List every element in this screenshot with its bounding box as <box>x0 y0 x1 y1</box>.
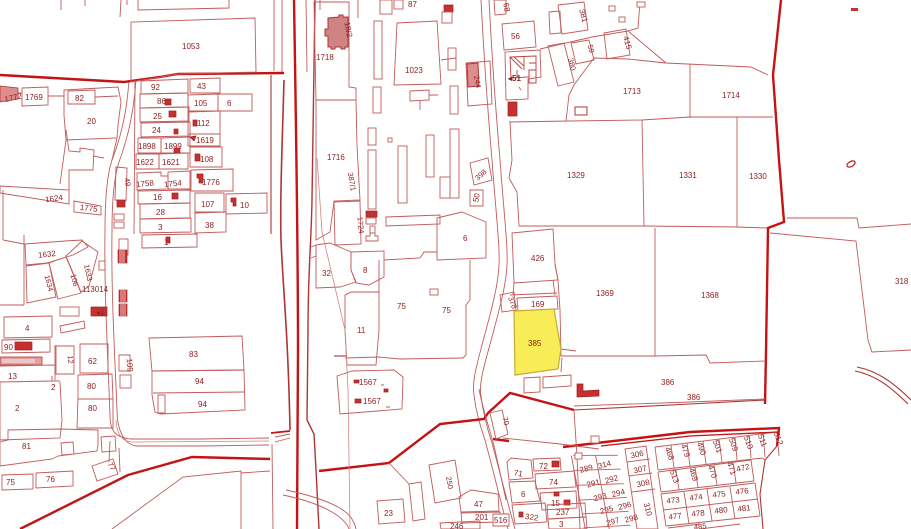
svg-text:1898: 1898 <box>138 142 156 151</box>
svg-text:474: 474 <box>689 492 704 503</box>
svg-text:1775: 1775 <box>79 203 98 214</box>
svg-text:2: 2 <box>15 404 20 413</box>
svg-text:1714: 1714 <box>722 91 740 100</box>
svg-text:12: 12 <box>66 355 76 364</box>
svg-text:475: 475 <box>712 489 727 500</box>
svg-text:1330: 1330 <box>749 172 767 181</box>
svg-text:15: 15 <box>551 499 560 508</box>
svg-text:1567: 1567 <box>359 378 377 387</box>
svg-text:83: 83 <box>189 350 198 359</box>
svg-text:1754: 1754 <box>164 178 183 189</box>
svg-text:3: 3 <box>559 520 564 529</box>
svg-text:28: 28 <box>156 208 165 217</box>
svg-text:1331: 1331 <box>679 171 697 180</box>
svg-text:6: 6 <box>227 99 232 108</box>
svg-text:105: 105 <box>194 99 208 108</box>
svg-text:81: 81 <box>22 442 31 451</box>
svg-text:16: 16 <box>153 193 162 202</box>
svg-text:516: 516 <box>494 516 508 525</box>
svg-text:113014: 113014 <box>82 285 109 294</box>
svg-text:386: 386 <box>687 393 701 402</box>
svg-text:485: 485 <box>693 521 707 529</box>
svg-text:49: 49 <box>122 177 132 187</box>
svg-text:82: 82 <box>75 94 84 103</box>
svg-text:87: 87 <box>408 0 417 9</box>
svg-text:1769: 1769 <box>25 93 43 102</box>
svg-text:1368: 1368 <box>701 291 719 300</box>
svg-text:1023: 1023 <box>405 66 423 75</box>
svg-text:74: 74 <box>549 478 558 487</box>
svg-text:480: 480 <box>714 505 729 516</box>
svg-text:94: 94 <box>198 400 207 409</box>
svg-text:1724: 1724 <box>356 216 366 233</box>
svg-text:477: 477 <box>668 511 683 522</box>
svg-text:13: 13 <box>8 372 17 381</box>
svg-text:385: 385 <box>528 339 542 348</box>
svg-text:1758: 1758 <box>136 178 155 189</box>
svg-text:426: 426 <box>531 254 545 263</box>
svg-text:1329: 1329 <box>567 171 585 180</box>
svg-text:1567: 1567 <box>363 397 381 406</box>
svg-text:92: 92 <box>151 83 160 92</box>
svg-text:24: 24 <box>152 126 161 135</box>
svg-text:◂1: ◂1 <box>96 308 105 317</box>
svg-text:6: 6 <box>521 490 526 499</box>
svg-text:3: 3 <box>158 223 163 232</box>
svg-text:6: 6 <box>463 234 468 243</box>
svg-text:75: 75 <box>397 302 406 311</box>
svg-text:75: 75 <box>442 306 451 315</box>
svg-text:1632: 1632 <box>38 249 57 260</box>
svg-text:1369: 1369 <box>596 289 614 298</box>
svg-text:108: 108 <box>200 155 214 164</box>
svg-text:1716: 1716 <box>327 153 345 162</box>
svg-text:1622: 1622 <box>136 158 154 167</box>
svg-text:10: 10 <box>240 201 249 210</box>
svg-text:2: 2 <box>51 383 56 392</box>
svg-text:107: 107 <box>201 200 215 209</box>
svg-text:72: 72 <box>539 462 548 471</box>
svg-text:25: 25 <box>153 112 162 121</box>
svg-text:169: 169 <box>531 300 545 309</box>
svg-text:94: 94 <box>195 377 204 386</box>
svg-text:56: 56 <box>511 32 520 41</box>
svg-text:32: 32 <box>322 269 331 278</box>
svg-text:◂51: ◂51 <box>507 74 521 83</box>
svg-text:246: 246 <box>450 522 464 529</box>
svg-text:90: 90 <box>4 343 13 352</box>
svg-text:38: 38 <box>205 221 214 230</box>
svg-text:80: 80 <box>87 382 96 391</box>
svg-text:1713: 1713 <box>623 87 641 96</box>
svg-text:47: 47 <box>474 500 483 509</box>
svg-text:201: 201 <box>475 513 489 522</box>
svg-text:473: 473 <box>666 495 681 506</box>
svg-text:322: 322 <box>524 512 539 523</box>
svg-text:386: 386 <box>661 378 675 387</box>
svg-text:109: 109 <box>125 358 135 373</box>
svg-text:1621: 1621 <box>162 158 180 167</box>
svg-text:476: 476 <box>735 486 750 497</box>
svg-text:478: 478 <box>691 508 706 519</box>
svg-text:112: 112 <box>197 119 210 128</box>
svg-text:1619: 1619 <box>196 136 214 145</box>
svg-text:4: 4 <box>25 324 30 333</box>
svg-text:20: 20 <box>87 117 96 126</box>
svg-text:11: 11 <box>357 326 366 335</box>
svg-text:481: 481 <box>737 503 752 514</box>
svg-text:1776: 1776 <box>202 178 220 187</box>
svg-text:8: 8 <box>363 266 368 275</box>
svg-text:75: 75 <box>6 478 15 487</box>
svg-text:318: 318 <box>895 277 909 286</box>
svg-text:237: 237 <box>556 508 570 517</box>
svg-text:80: 80 <box>88 404 97 413</box>
svg-text:23: 23 <box>384 509 393 518</box>
svg-text:1718: 1718 <box>316 53 334 62</box>
svg-text:43: 43 <box>197 82 206 91</box>
svg-text:62: 62 <box>88 357 97 366</box>
svg-text:1053: 1053 <box>182 42 200 51</box>
svg-text:76: 76 <box>46 475 55 484</box>
